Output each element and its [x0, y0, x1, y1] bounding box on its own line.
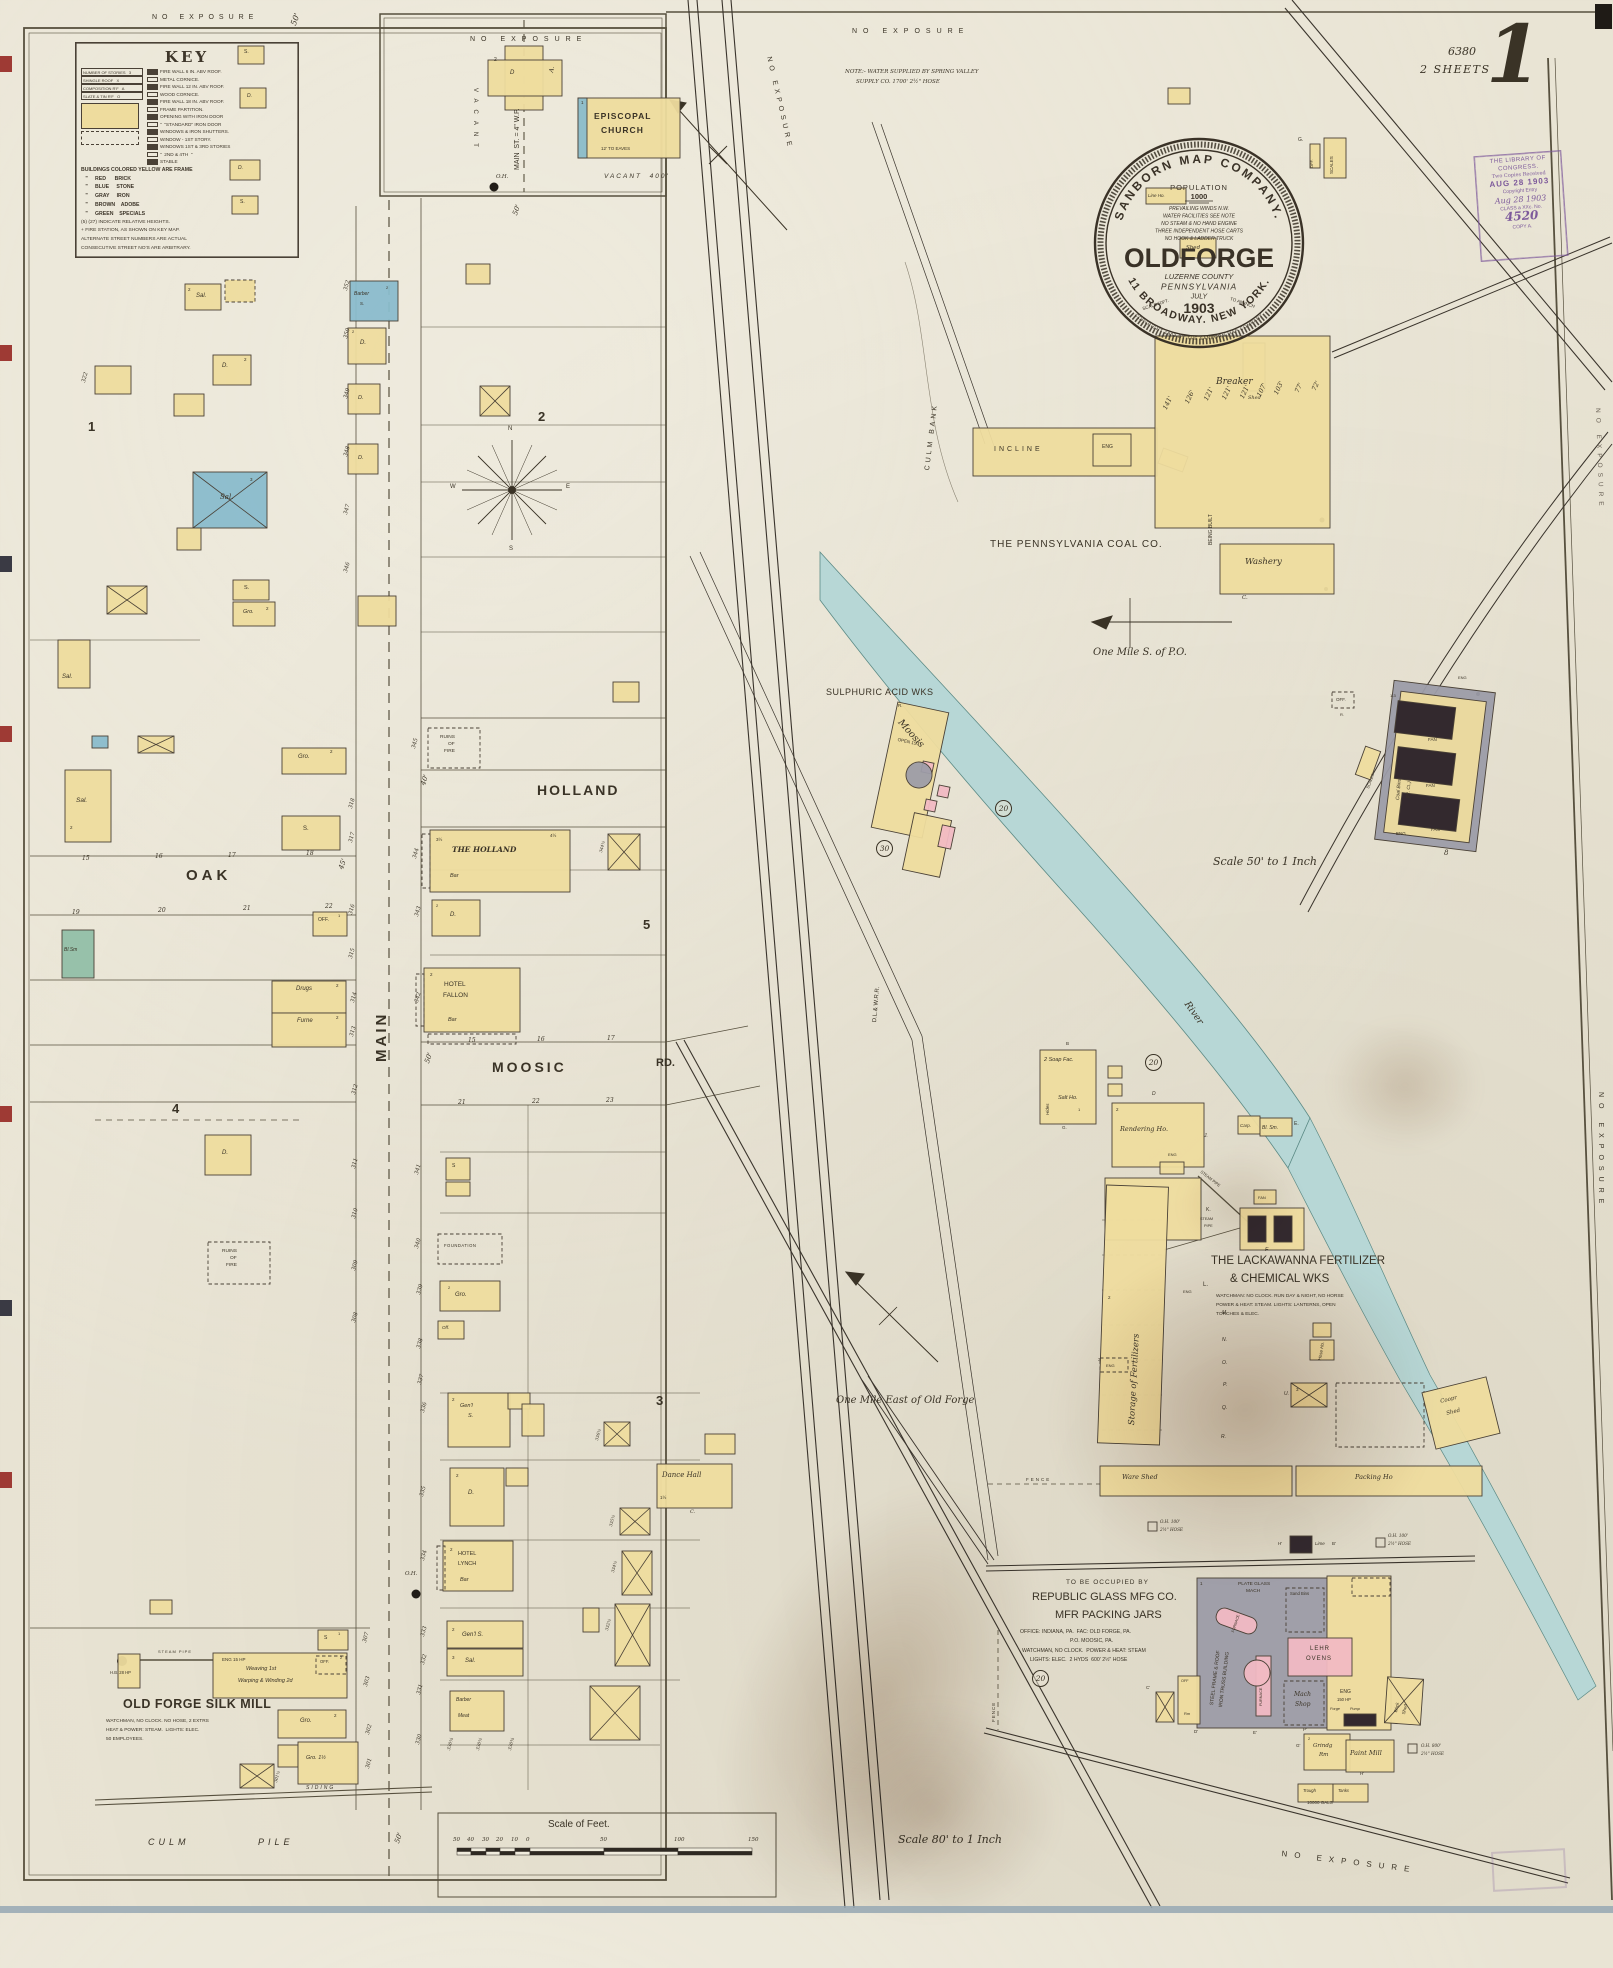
map-label: L.	[1203, 1282, 1208, 1288]
map-label: 2	[452, 1398, 455, 1403]
key-line: FIRE WALL 6 IN. ABV ROOF.	[147, 68, 293, 76]
key-diagram-list: FIRE WALL 6 IN. ABV ROOF.METAL CORNICE.F…	[147, 68, 293, 166]
key-line: + FIRE STATION, AS SHOWN ON KEY MAP.	[81, 227, 293, 236]
map-label: 22	[532, 1099, 540, 1105]
map-label: MFR PACKING JARS	[1055, 1610, 1162, 1621]
map-label: G'	[1296, 1744, 1300, 1749]
map-label: NO EXPOSURE	[152, 14, 258, 21]
key-title: KEY	[81, 48, 293, 66]
map-label: 2	[436, 904, 438, 908]
map-label: Coal Bins	[1396, 779, 1403, 801]
map-label: 121'	[1203, 386, 1215, 402]
map-label: J.	[1204, 1134, 1208, 1139]
map-label: FAN	[1431, 828, 1440, 833]
map-label: 330¼	[448, 1737, 456, 1751]
map-label: PIPE	[1204, 1225, 1213, 1229]
block-number: 2	[538, 410, 545, 423]
key-line: " GREEN SPECIALS	[81, 210, 293, 219]
edge-tab	[0, 1472, 12, 1488]
key-line: STABLE	[147, 158, 293, 166]
map-label: Bl.Sm	[64, 948, 77, 953]
map-label: PLATE GLASS	[1238, 1583, 1270, 1588]
map-label: 2	[430, 973, 433, 978]
map-label: WATCHMAN, NO CLOCK. NO HOSE, 2 EXTRS	[106, 1720, 209, 1725]
map-label: Brick	[1394, 1702, 1400, 1713]
map-label: One Mile East of Old Forge	[836, 1396, 974, 1406]
svg-text:POPULATION: POPULATION	[1170, 183, 1228, 192]
map-label: 312	[352, 1084, 360, 1096]
map-label: F	[1265, 1248, 1268, 1254]
map-label: ENG	[1106, 1364, 1115, 1368]
map-label: R.	[1340, 713, 1344, 717]
edge-tab	[0, 556, 12, 572]
map-label: Sal.	[465, 1658, 475, 1664]
map-label: STEAM PIPE	[158, 1650, 192, 1654]
map-label: O.H.	[405, 1572, 417, 1578]
map-label: Barber	[456, 1698, 471, 1703]
svg-text:NO STEAM & NO HAND ENGINE: NO STEAM & NO HAND ENGINE	[1161, 221, 1238, 227]
map-label: 337	[418, 1374, 426, 1386]
map-label: NO EXPOSURE	[1594, 408, 1604, 511]
map-label: 12' TO EAVES	[601, 147, 630, 152]
map-labels-layer: 63802 SHEETS1NO EXPOSURE50'NO EXPOSUREVA…	[0, 0, 1613, 1913]
map-label: ENG	[1168, 1153, 1177, 1157]
map-label: 3	[250, 478, 253, 483]
map-label: LYNCH	[458, 1562, 476, 1568]
map-label: 335½	[609, 1514, 616, 1527]
map-label: Gro.	[455, 1292, 467, 1298]
key-line: BUILDINGS COLORED YELLOW ARE FRAME	[81, 166, 293, 175]
map-label: 317	[349, 832, 357, 844]
svg-text:LUZERNE COUNTY: LUZERNE COUNTY	[1165, 272, 1235, 281]
map-label: Sal.	[62, 674, 72, 680]
map-label: OFF.	[1310, 159, 1314, 168]
map-label: 2	[336, 984, 339, 989]
map-label: Rendering Ho.	[1120, 1126, 1168, 1133]
ruler-tick-label: 30	[482, 1838, 489, 1844]
svg-text:PENNSYLVANIA: PENNSYLVANIA	[1161, 282, 1237, 292]
map-label: D	[510, 70, 514, 76]
map-label: 45'	[338, 858, 348, 871]
street-label-rd: RD.	[656, 1058, 675, 1069]
map-label: Bar	[450, 874, 459, 880]
block-number: 5	[643, 918, 650, 931]
map-label: 340	[415, 1238, 423, 1250]
map-label: Sal.	[76, 798, 87, 805]
map-label: Gro.	[243, 610, 254, 616]
map-label: 15	[82, 856, 90, 862]
map-label: 6380	[1448, 46, 1476, 57]
key-line: WINDOWS & IRON SHUTTERS.	[147, 128, 293, 136]
map-label: One Mile S. of P.O.	[1093, 648, 1187, 658]
block-number: 4	[172, 1102, 179, 1115]
map-label: Weaving 1st	[246, 1667, 276, 1673]
map-label: Ware Shed	[1122, 1474, 1158, 1481]
map-label: 1	[338, 914, 340, 918]
map-label: Tanks	[1338, 1789, 1349, 1793]
map-label: O.	[1222, 1361, 1227, 1366]
map-label: 315	[349, 948, 357, 960]
map-label: 322	[82, 372, 90, 384]
map-label: 334½	[611, 1560, 618, 1573]
map-label: Bl. Sm.	[1262, 1126, 1278, 1131]
map-label: 107'	[1256, 382, 1268, 398]
map-label: ENG	[1458, 676, 1467, 680]
sheet-number: 1	[1486, 14, 1542, 94]
map-label: Warping & Winding 2d	[238, 1679, 293, 1685]
map-label: 3	[1296, 1388, 1299, 1393]
key-line: COMPOSITION R'F A	[81, 84, 143, 92]
map-label: 126'	[1184, 389, 1196, 405]
map-label: FENCE	[992, 1702, 997, 1722]
map-label: CULM	[148, 1838, 190, 1847]
map-label: FENCE	[1026, 1478, 1051, 1483]
map-label: SCALES	[1330, 156, 1335, 174]
map-label: 2	[266, 607, 269, 612]
svg-text:THREE INDEPENDENT HOSE CARTS: THREE INDEPENDENT HOSE CARTS	[1155, 229, 1244, 235]
map-label: R.	[1221, 1435, 1226, 1440]
map-label: Mach	[1294, 1692, 1311, 1698]
map-label: G.	[1062, 1126, 1067, 1131]
ruler-tick-label: 20	[496, 1838, 503, 1844]
map-label: ENG	[1340, 1690, 1351, 1695]
key-line: WINDOW - 1ST STORY.	[147, 136, 293, 144]
map-label: NOTE:- WATER SUPPLIED BY SPRING VALLEY	[845, 70, 978, 76]
map-label: 330	[416, 1734, 424, 1746]
key-line: SHINGLE ROOF X	[81, 76, 143, 84]
edge-tab	[0, 1300, 12, 1316]
map-label: Bar	[460, 1578, 469, 1584]
map-label: 1	[1078, 1108, 1080, 1112]
map-label: 19	[72, 910, 80, 916]
map-label: 21	[243, 906, 251, 912]
map-label: 1	[1200, 1582, 1203, 1587]
map-label: 2	[336, 1016, 339, 1021]
map-label: C.	[1242, 596, 1248, 602]
map-label: VACANT	[472, 88, 478, 154]
map-label: FOUNDATION	[444, 1244, 476, 1248]
map-label: 2	[386, 286, 388, 290]
map-label: C.	[690, 1510, 695, 1515]
svg-text:PREVAILING WINDS N.W.: PREVAILING WINDS N.W.	[1169, 206, 1229, 212]
key-line: " RED BRICK	[81, 175, 293, 184]
map-label: D.	[358, 456, 364, 462]
map-label: Salt Ho.	[1058, 1096, 1078, 1102]
map-label: H'	[1278, 1542, 1282, 1547]
circled-number: 30	[876, 840, 893, 857]
map-label: SCALES	[1366, 773, 1375, 789]
map-label: 339	[417, 1284, 425, 1296]
map-label: D.L.& W.R.R.	[872, 986, 881, 1022]
block-number: 1	[88, 420, 95, 433]
map-label: Barber	[354, 292, 369, 297]
key-roof-table: NUMBER OF STORIES 3SHINGLE ROOF XCOMPOSI…	[81, 68, 143, 166]
map-label: S.	[244, 586, 249, 592]
map-label: 2	[330, 750, 333, 755]
map-label: HOTEL	[444, 982, 466, 989]
map-label: 4½	[550, 834, 556, 839]
map-label: 1	[338, 1632, 340, 1636]
map-label: B	[1066, 1042, 1069, 1047]
map-label: SULPHURIC ACID WKS	[826, 688, 934, 697]
map-label: STEAM	[1200, 1218, 1213, 1222]
map-label: 344	[413, 848, 421, 860]
ruler-tick-label: 10	[511, 1838, 518, 1844]
map-label: RUINS	[222, 1250, 237, 1255]
key-line: ALTERNATE STREET NUMBERS ARE ACTUAL	[81, 236, 293, 245]
map-label: SIDING	[306, 1786, 335, 1791]
map-label: 50'	[424, 1052, 434, 1065]
map-label: S	[509, 546, 513, 552]
map-label: Washery	[1245, 558, 1282, 567]
map-label: 318	[349, 798, 357, 810]
map-label: INCLINE	[994, 446, 1043, 453]
map-label: HOTEL	[458, 1552, 476, 1558]
map-label: FURNACE	[1260, 1688, 1264, 1706]
map-label: Off.	[442, 1326, 449, 1331]
map-label: NO EXPOSURE	[1281, 1850, 1417, 1874]
map-label: 2	[188, 288, 191, 293]
map-label: 2½" HOSE	[1388, 1542, 1411, 1546]
map-label: Gro.	[300, 1718, 312, 1724]
map-label: Gro.	[298, 754, 310, 760]
map-label: 40'	[420, 774, 430, 787]
map-label: 314	[351, 992, 359, 1004]
map-label: S.	[360, 302, 364, 307]
map-label: ENG	[1396, 832, 1406, 837]
scale-bar-title: Scale of Feet.	[548, 1820, 610, 1830]
map-label: RUINS	[440, 736, 455, 741]
key-line: WOOD CORNICE.	[147, 91, 293, 99]
map-label: E.	[1294, 1122, 1299, 1127]
map-label: Meat	[458, 1714, 469, 1719]
map-label: 15	[468, 1038, 476, 1044]
map-label: Shop	[1295, 1702, 1310, 1708]
map-label: D.	[358, 396, 364, 402]
map-label: D.	[360, 340, 366, 346]
map-label: 3	[1098, 1358, 1101, 1363]
map-label: 50 EMPLOYEES.	[106, 1738, 144, 1743]
map-label: THE HOLLAND	[452, 846, 516, 854]
key-line: " BLUE STONE	[81, 183, 293, 192]
map-label: Furne	[297, 1018, 313, 1024]
corner-mark	[1595, 4, 1612, 29]
sanborn-seal: COPYRIGHT 1903 BY THE SANBORN MAP COMPAN…	[1092, 136, 1306, 350]
map-label: O.H.	[496, 175, 508, 181]
map-label: Shed	[1446, 1409, 1461, 1418]
map-label: TO BE OCCUPIED BY	[1066, 1580, 1149, 1587]
key-line: OPENING WITH IRON DOOR	[147, 113, 293, 121]
map-label: 2	[352, 330, 354, 334]
map-label: REPUBLIC GLASS MFG CO.	[1032, 1592, 1177, 1603]
map-label: 330¾	[509, 1737, 517, 1751]
map-label: 2	[456, 1474, 459, 1479]
map-label: 2½" HOSE	[1160, 1528, 1183, 1532]
map-label: Grindg	[1313, 1744, 1332, 1750]
map-label: 352	[344, 280, 352, 292]
map-label: 2 SHEETS	[1420, 64, 1491, 75]
map-label: CHURCH	[601, 126, 644, 135]
map-label: Q.	[1222, 1406, 1227, 1411]
key-line: FRAME PARTITION.	[147, 106, 293, 114]
scale-note-50: Scale 50' to 1 Inch	[1213, 856, 1317, 867]
map-label: THE LACKAWANNA FERTILIZER	[1211, 1256, 1385, 1268]
map-label: 103'	[1273, 380, 1285, 396]
map-label: D.	[468, 1490, 474, 1496]
ruler-tick-label: 0	[526, 1838, 530, 1844]
ruler-tick-label: 100	[674, 1838, 685, 1844]
map-label: 303	[364, 1676, 372, 1688]
map-label: D.	[222, 1150, 228, 1156]
map-label: 343	[415, 906, 423, 918]
key-line: NUMBER OF STORIES 3	[81, 68, 143, 76]
map-label: 2	[494, 58, 497, 63]
map-label: 16	[155, 854, 163, 860]
map-label: P'	[1303, 1728, 1307, 1733]
map-label: 16	[537, 1037, 545, 1043]
map-label: A.	[549, 66, 556, 73]
map-label: NO EXPOSURE	[1597, 1092, 1604, 1209]
map-label: 21	[458, 1100, 466, 1106]
map-label: Rm	[1319, 1753, 1328, 1759]
map-label: 310	[352, 1208, 360, 1220]
map-label: 8	[1444, 850, 1448, 857]
map-label: 333	[421, 1626, 429, 1638]
map-label: N	[508, 426, 512, 432]
scan-edge	[0, 1906, 1613, 1913]
map-label: 17	[228, 853, 236, 859]
edge-tab	[0, 726, 12, 742]
svg-text:1903: 1903	[1183, 300, 1214, 316]
map-label: Hose Ho.	[1318, 1342, 1326, 1361]
map-label: OF	[230, 1257, 237, 1262]
map-label: 347	[344, 504, 352, 516]
map-label: 301	[366, 1758, 374, 1770]
map-label: O.H. 800'	[1421, 1744, 1441, 1748]
map-label: & CHEMICAL WKS	[1230, 1274, 1329, 1286]
map-label: H'	[1360, 1772, 1364, 1777]
map-label: VACANT 400'	[604, 174, 670, 181]
map-label: ENG	[1102, 445, 1113, 450]
map-label: 309	[352, 1260, 360, 1272]
map-label: CULM BANK	[924, 403, 939, 471]
map-label: 20	[158, 908, 166, 914]
map-label: 330½	[477, 1737, 485, 1751]
street-label-holland: HOLLAND	[537, 783, 619, 797]
map-label: P.	[1223, 1383, 1227, 1388]
map-label: ENG 15 HP	[222, 1658, 246, 1663]
key-line: (5) (27) INDICATE RELATIVE HEIGHTS.	[81, 219, 293, 228]
key-line: " GRAY IRON	[81, 192, 293, 201]
map-label: Sal.	[220, 494, 233, 501]
map-label: E	[566, 484, 570, 490]
key-line: " "STANDARD" IRON DOOR	[147, 121, 293, 129]
edge-tab	[0, 345, 12, 361]
svg-text:WATER FACILITIES SEE NOTE: WATER FACILITIES SEE NOTE	[1163, 214, 1236, 220]
map-label: 141'	[1162, 395, 1174, 411]
ruler-tick-label: 50	[600, 1838, 607, 1844]
map-label: OFF.	[1336, 698, 1346, 703]
map-label: LIGHTS: ELEC. 2 HYDS 600' 2½" HOSE	[1030, 1658, 1127, 1663]
map-label: E'	[1253, 1731, 1257, 1736]
ruler-tick-label: 150	[748, 1838, 759, 1844]
map-label: NO EXPOSURE	[852, 28, 969, 35]
map-label: 348	[344, 446, 352, 458]
silk-mill-title: OLD FORGE SILK MILL	[123, 1698, 271, 1711]
map-label: 311	[352, 1158, 360, 1170]
map-label: MACH	[1246, 1590, 1260, 1595]
stamp-fragment	[1491, 1848, 1567, 1892]
map-label: Gen'l S.	[462, 1632, 483, 1638]
map-label: Paint Mill	[1350, 1750, 1382, 1757]
map-label: S	[452, 1164, 455, 1169]
seal-city: OLDFORGE	[1124, 243, 1274, 273]
map-label: D.	[450, 912, 456, 918]
library-of-congress-stamp: THE LIBRARY OF CONGRESS. Two Copies Rece…	[1473, 150, 1568, 262]
street-label-main: MAIN	[374, 1012, 389, 1062]
map-label: Drugs	[296, 986, 312, 992]
map-label: O.H. 100'	[1160, 1520, 1180, 1524]
key-line: WINDOWS 1ST & 3RD STORIES	[147, 143, 293, 151]
map-label: FAN	[1428, 738, 1437, 743]
map-label: PILE	[258, 1838, 294, 1847]
map-label: 17	[607, 1036, 615, 1042]
map-label: FIRE	[444, 750, 455, 755]
map-label: POWER & HEAT: STEAM. LIGHTS: LANTERNS, O…	[1216, 1304, 1336, 1309]
map-label: D'	[1194, 1730, 1198, 1735]
map-label: Shed	[1402, 1704, 1409, 1715]
map-label: B'	[1332, 1542, 1336, 1547]
map-label: OFFICE: INDIANA, PA. FAC: OLD FORGE, PA.	[1020, 1630, 1131, 1635]
map-label: Forge	[1330, 1708, 1340, 1712]
map-label: 2 Soap Fac.	[1044, 1058, 1074, 1064]
key-line: FIRE WALL 18 IN. ABV ROOF.	[147, 98, 293, 106]
map-label: R.	[898, 704, 903, 709]
map-label: 313	[350, 1026, 358, 1038]
map-label: 2	[244, 358, 247, 363]
circled-number: 20	[1145, 1054, 1162, 1071]
map-label: 2	[1116, 1108, 1119, 1113]
map-label: U.	[1284, 1392, 1289, 1397]
edge-tab	[0, 1106, 12, 1122]
map-label: 316	[349, 904, 357, 916]
map-label: 2	[450, 1548, 453, 1553]
key-frame-swatch	[81, 103, 139, 129]
key-line: FIRE WALL 12 IN. ABV ROOF.	[147, 83, 293, 91]
map-label: Rm	[1184, 1712, 1190, 1716]
ruler-tick-label: 40	[467, 1838, 474, 1844]
map-label: 2	[1108, 1296, 1111, 1301]
map-label: Gro. 1½	[306, 1756, 326, 1762]
scale-note-80: Scale 80' to 1 Inch	[898, 1834, 1002, 1845]
map-label: S.	[303, 826, 309, 832]
map-label: River	[1182, 1000, 1205, 1027]
sanborn-map-sheet: 63802 SHEETS1NO EXPOSURE50'NO EXPOSUREVA…	[0, 0, 1613, 1913]
map-label: S.	[468, 1414, 473, 1420]
map-label: 1½	[660, 1496, 666, 1501]
key-line: " BROWN ADOBE	[81, 201, 293, 210]
map-label: SUPPLY CO. 1700' 2½" HOSE	[856, 80, 940, 86]
map-label: OF	[448, 743, 455, 748]
map-label: Sand Bins	[1290, 1592, 1309, 1596]
map-label: 332½	[605, 1618, 612, 1631]
map-label: Coopr	[1440, 1396, 1458, 1405]
map-label: 341	[415, 1164, 423, 1176]
map-label: FALLON	[443, 993, 468, 1000]
map-label: 336	[421, 1402, 429, 1414]
map-label: ENG	[1183, 1290, 1192, 1294]
map-label: 2	[334, 1714, 337, 1719]
